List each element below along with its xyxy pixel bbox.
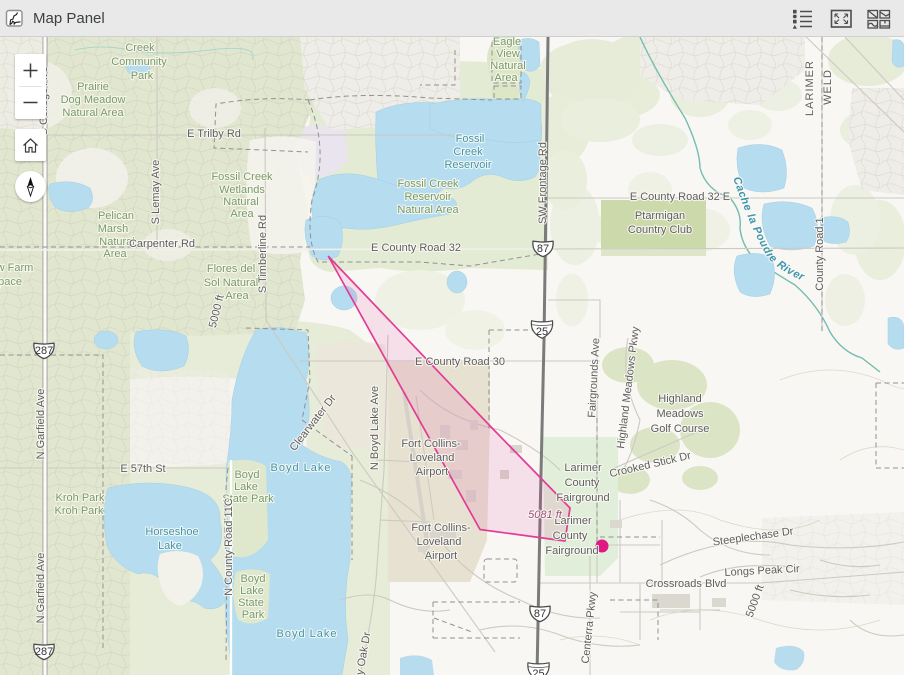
svg-text:Kroh Park: Kroh Park: [56, 492, 105, 504]
svg-text:County: County: [565, 477, 600, 489]
svg-text:Marsh: Marsh: [98, 223, 129, 235]
svg-text:pace: pace: [0, 276, 22, 288]
svg-text:E Trilby Rd: E Trilby Rd: [187, 128, 241, 140]
svg-text:View: View: [496, 48, 520, 60]
svg-text:Reservoir: Reservoir: [404, 191, 451, 203]
svg-text:Reservoir: Reservoir: [444, 159, 491, 171]
svg-text:S Lemay Ave: S Lemay Ave: [150, 160, 162, 225]
svg-text:Area: Area: [225, 290, 249, 302]
svg-text:Airport: Airport: [416, 466, 448, 478]
svg-text:County Road 1: County Road 1: [814, 217, 826, 290]
svg-text:Natural Area: Natural Area: [397, 204, 459, 216]
svg-text:County: County: [553, 530, 588, 542]
svg-text:N Garfield Ave: N Garfield Ave: [35, 389, 47, 460]
svg-text:SW Frontage Rd: SW Frontage Rd: [537, 142, 549, 224]
svg-text:Boyd: Boyd: [234, 469, 259, 481]
svg-text:Loveland: Loveland: [417, 536, 462, 548]
svg-text:Flores del: Flores del: [207, 263, 255, 275]
svg-text:Boyd Lake: Boyd Lake: [271, 462, 332, 474]
svg-text:287: 287: [35, 345, 53, 357]
svg-text:State: State: [238, 597, 264, 609]
svg-text:Fossil: Fossil: [456, 133, 485, 145]
svg-text:LARIMER: LARIMER: [804, 60, 816, 116]
svg-text:Fort Collins-: Fort Collins-: [411, 522, 471, 534]
svg-text:Fossil Creek: Fossil Creek: [397, 178, 459, 190]
svg-text:Area: Area: [230, 208, 254, 220]
svg-text:E County Road 32: E County Road 32: [371, 242, 461, 254]
svg-text:Fairground: Fairground: [545, 545, 598, 557]
svg-text:Wetlands: Wetlands: [219, 184, 265, 196]
svg-text:E 57th St: E 57th St: [120, 463, 165, 475]
svg-text:Park: Park: [131, 70, 154, 82]
svg-text:87: 87: [534, 608, 546, 620]
svg-text:Fort Collins-: Fort Collins-: [401, 438, 461, 450]
svg-text:E County Road 30: E County Road 30: [415, 356, 505, 368]
svg-text:Lake: Lake: [158, 540, 182, 552]
svg-text:Loveland: Loveland: [410, 452, 455, 464]
svg-text:Natural: Natural: [490, 60, 525, 72]
svg-text:E County Road 32 E: E County Road 32 E: [630, 191, 730, 203]
svg-text:Carpenter Rd: Carpenter Rd: [129, 238, 195, 250]
svg-text:Boyd Lake: Boyd Lake: [277, 628, 338, 640]
svg-text:Creek: Creek: [125, 42, 155, 54]
svg-text:Golf Course: Golf Course: [651, 423, 710, 435]
svg-text:Meadows: Meadows: [656, 408, 704, 420]
svg-text:5081 ft: 5081 ft: [528, 509, 563, 521]
svg-text:N Garfield Ave: N Garfield Ave: [35, 553, 47, 624]
svg-text:Horseshoe: Horseshoe: [145, 526, 198, 538]
svg-text:N County Road 11C: N County Road 11C: [223, 498, 235, 596]
svg-text:Eagle: Eagle: [493, 36, 521, 48]
svg-text:w Farm: w Farm: [0, 262, 33, 274]
svg-text:Fairground: Fairground: [556, 492, 609, 504]
svg-text:Prairie: Prairie: [77, 81, 109, 93]
svg-text:Dog Meadow: Dog Meadow: [61, 94, 126, 106]
svg-text:Sol Natural: Sol Natural: [204, 277, 258, 289]
svg-text:Creek: Creek: [453, 146, 483, 158]
svg-text:Larimer: Larimer: [564, 462, 602, 474]
svg-text:N Boyd Lake Ave: N Boyd Lake Ave: [369, 386, 381, 470]
svg-text:Area: Area: [103, 248, 127, 260]
svg-text:Lake: Lake: [234, 481, 258, 493]
svg-text:Kroh Park: Kroh Park: [55, 505, 104, 517]
svg-text:S Timberline Rd: S Timberline Rd: [257, 215, 269, 293]
svg-text:Natural Area: Natural Area: [62, 107, 124, 119]
svg-text:Crossroads Blvd: Crossroads Blvd: [646, 578, 727, 590]
svg-text:Pelican: Pelican: [98, 210, 134, 222]
svg-text:Highland: Highland: [658, 393, 701, 405]
svg-text:Ptarmigan: Ptarmigan: [635, 210, 685, 222]
svg-text:Lake: Lake: [240, 585, 264, 597]
svg-text:Boyd: Boyd: [240, 573, 265, 585]
svg-text:Park: Park: [242, 609, 265, 621]
svg-text:Airport: Airport: [425, 550, 457, 562]
svg-text:WELD: WELD: [822, 69, 834, 105]
svg-text:87: 87: [537, 243, 549, 255]
svg-text:25: 25: [536, 326, 548, 338]
svg-text:25: 25: [532, 668, 544, 675]
svg-text:Country Club: Country Club: [628, 224, 692, 236]
svg-text:Natural: Natural: [223, 196, 258, 208]
svg-text:Community: Community: [111, 56, 167, 68]
svg-text:Fossil Creek: Fossil Creek: [211, 171, 273, 183]
svg-text:Area: Area: [494, 72, 518, 84]
